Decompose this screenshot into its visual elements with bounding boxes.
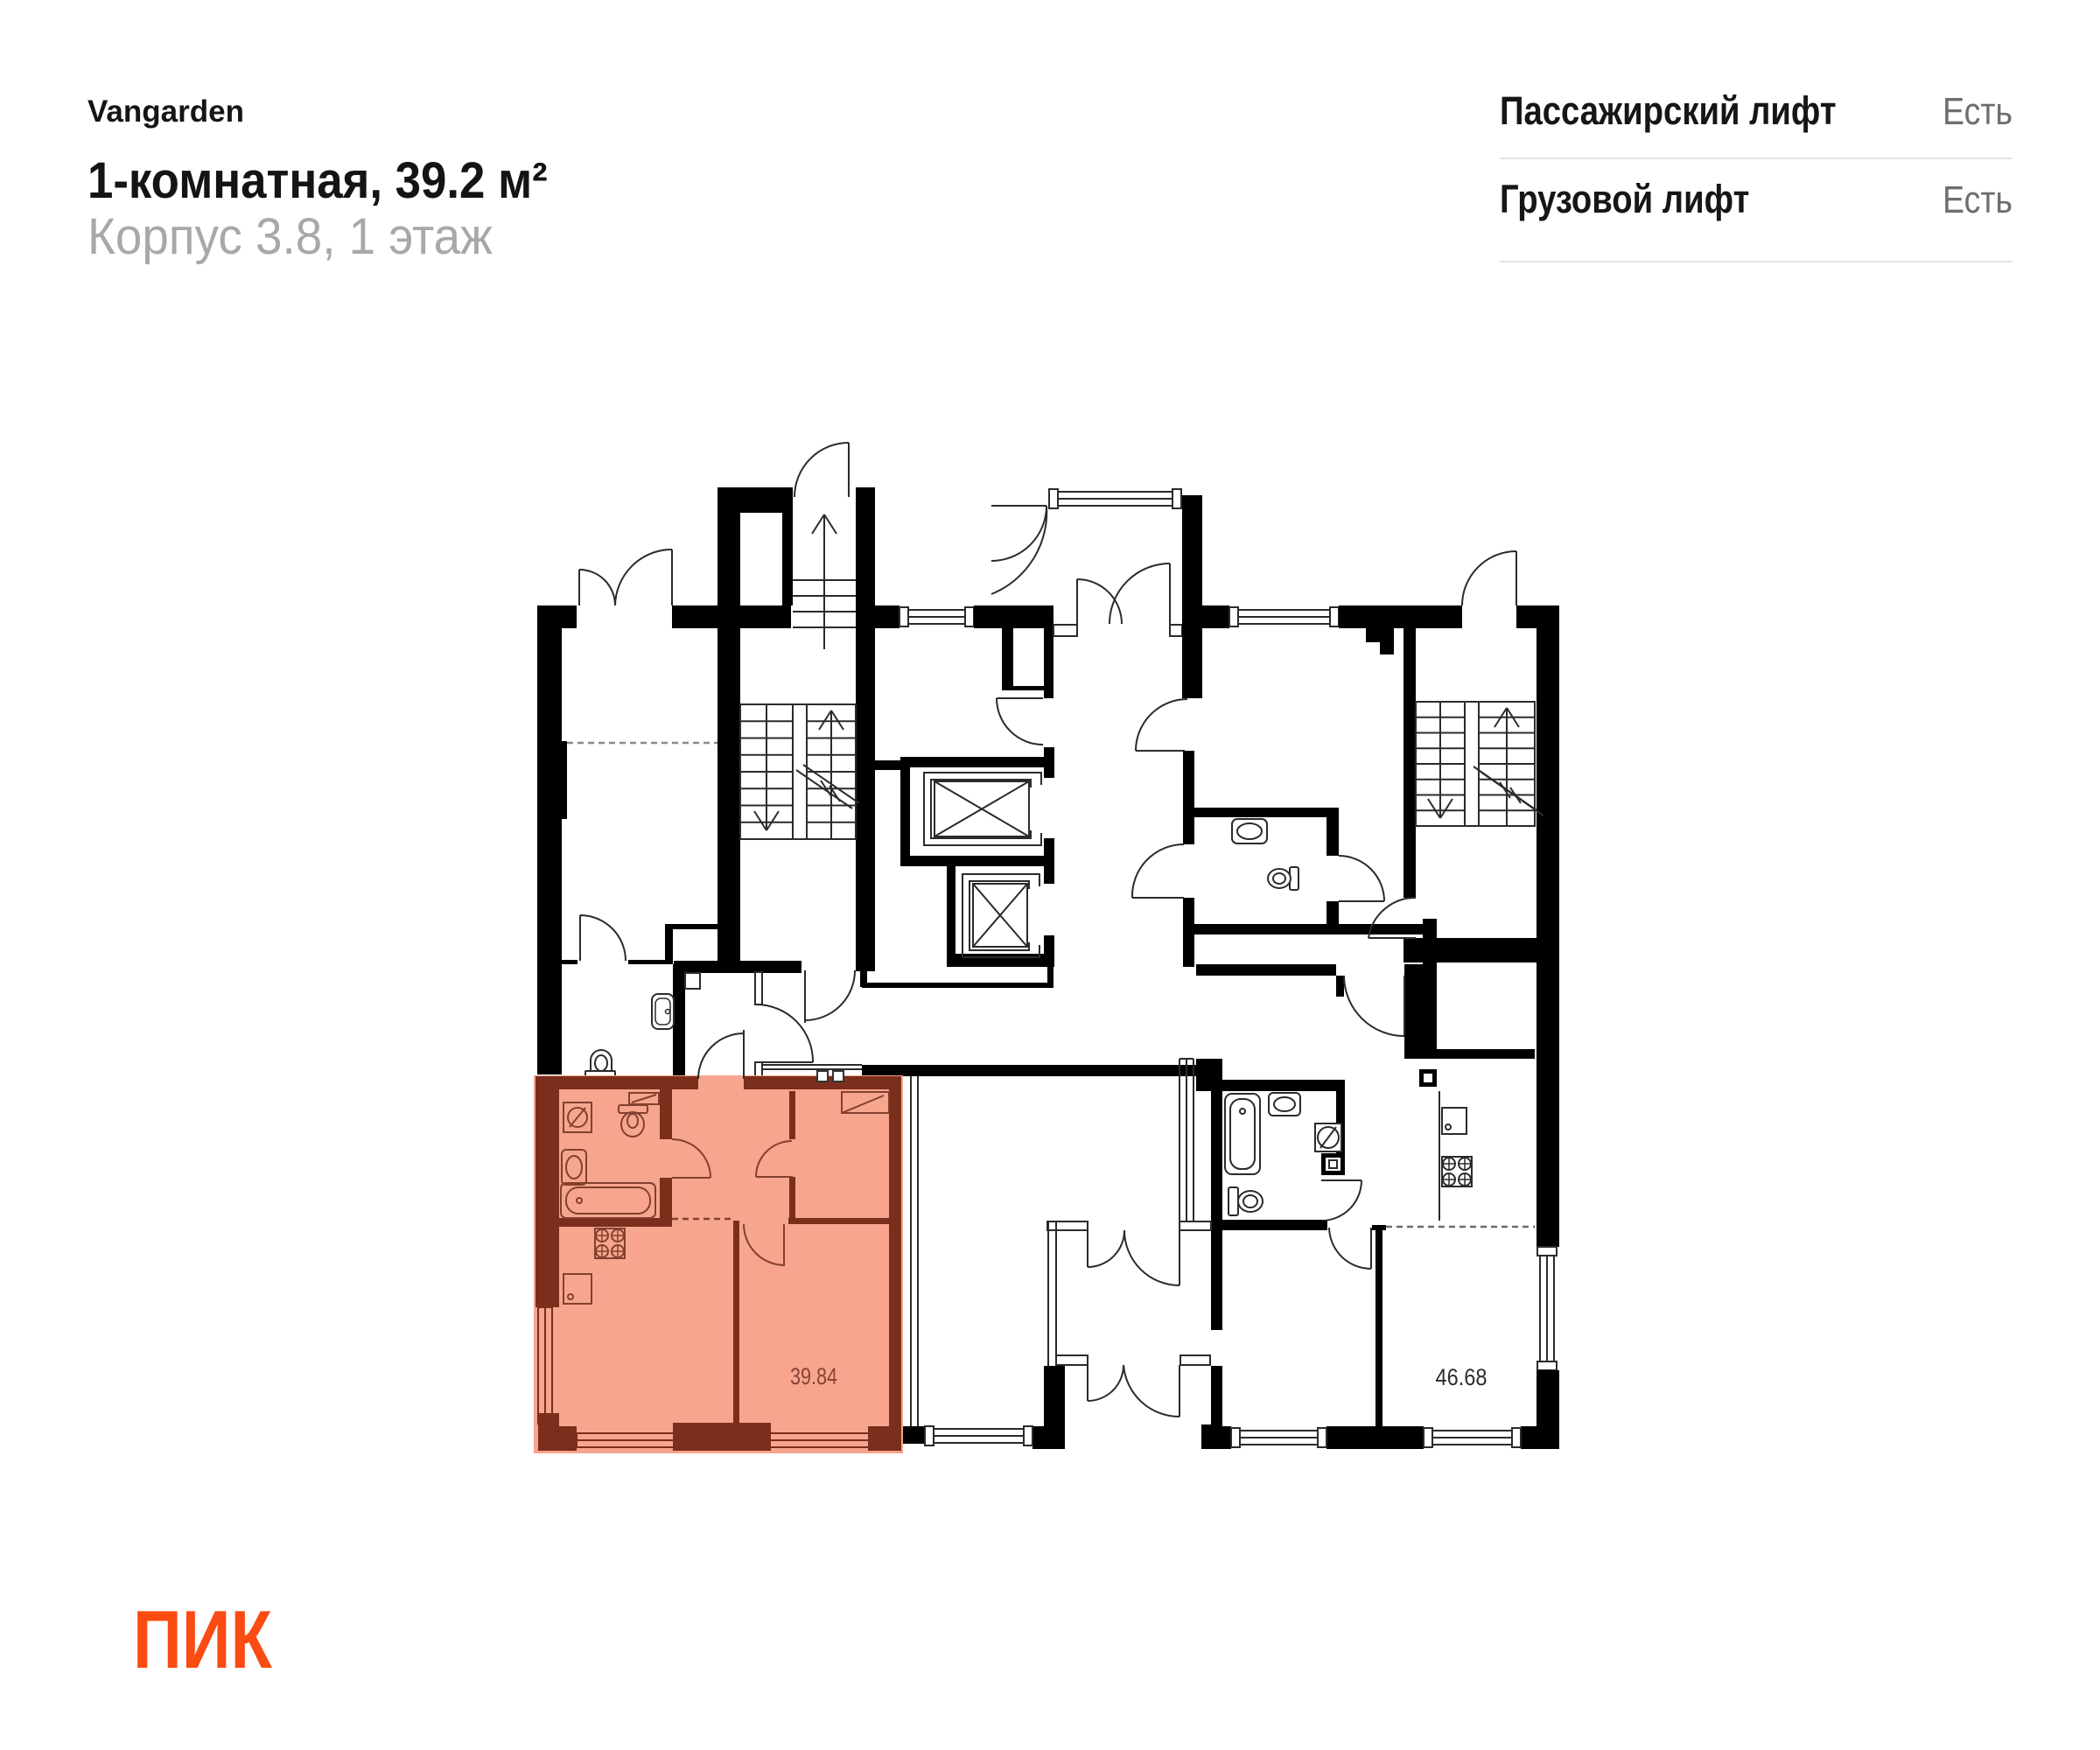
svg-text:46.68: 46.68: [1436, 1364, 1487, 1390]
svg-text:39.84: 39.84: [790, 1363, 837, 1389]
